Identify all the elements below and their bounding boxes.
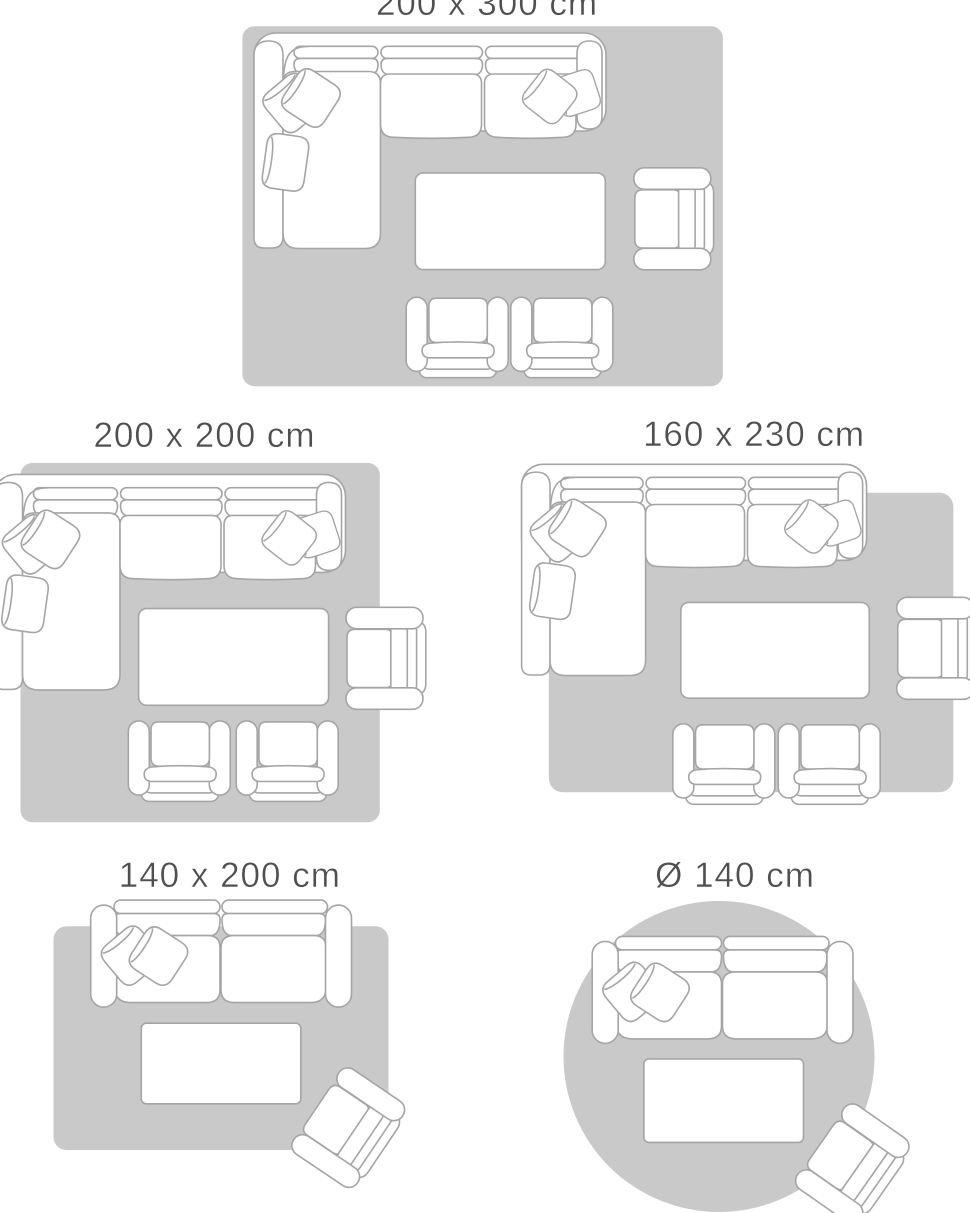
svg-text:Ø 140 cm: Ø 140 cm [655,856,815,895]
svg-text:140 x 200 cm: 140 x 200 cm [119,856,341,895]
svg-text:160 x 230 cm: 160 x 230 cm [643,415,865,454]
svg-text:200 x 300 cm: 200 x 300 cm [376,0,598,23]
svg-text:200 x 200 cm: 200 x 200 cm [93,416,315,455]
